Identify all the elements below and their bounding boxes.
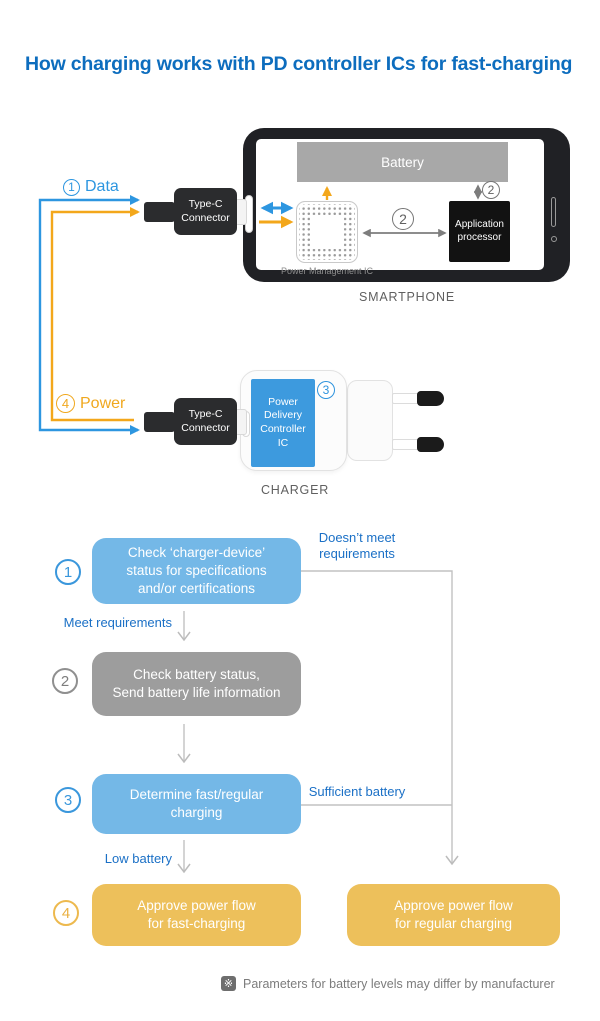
label-doesnt-meet-requirements: Doesn’t meet requirements — [297, 530, 417, 561]
label-meet-requirements: Meet requirements — [38, 615, 172, 631]
typec-cable-stem — [144, 202, 175, 222]
plug-prong-stem — [392, 393, 419, 404]
data-line-label: 1 Data — [63, 178, 119, 196]
label-low-battery: Low battery — [38, 851, 172, 867]
plug-prong-stem — [392, 439, 419, 450]
typec-cable-stem — [144, 412, 175, 432]
step4-badge-icon: 4 — [56, 394, 75, 413]
camera-lens-icon — [551, 236, 557, 242]
footnote: ※ Parameters for battery levels may diff… — [221, 976, 555, 991]
chip-core — [310, 215, 344, 249]
flow-step1-box: Check ‘charger-device’ status for specif… — [92, 538, 301, 604]
typec-connector-smartphone: Type-C Connector — [174, 188, 237, 235]
battery-block: Battery — [297, 142, 508, 182]
step2-badge-bus: 2 — [392, 208, 414, 230]
power-management-ic-chip-icon — [296, 201, 358, 263]
power-line-label: 4 Power — [56, 394, 125, 413]
flow-step3-number: 3 — [55, 787, 81, 813]
footnote-text: Parameters for battery levels may differ… — [243, 977, 555, 991]
reference-mark-icon: ※ — [221, 976, 236, 991]
data-line-text: Data — [85, 178, 119, 196]
plug-prong-tip — [417, 437, 444, 452]
step2-badge-battery: 2 — [482, 181, 500, 199]
application-processor-block: Application processor — [449, 201, 510, 262]
flow-step2-box: Check battery status, Send battery life … — [92, 652, 301, 716]
flow-step3-box: Determine fast/regular charging — [92, 774, 301, 834]
charger-caption: CHARGER — [244, 483, 346, 497]
flow-step2-number: 2 — [52, 668, 78, 694]
flow-step4-regular-box: Approve power flow for regular charging — [347, 884, 560, 946]
flow-step1-number: 1 — [55, 559, 81, 585]
charger-plug-base — [347, 380, 393, 461]
power-line-text: Power — [80, 395, 125, 413]
doesnt-meet-path — [301, 571, 452, 864]
infographic-canvas: How charging works with PD controller IC… — [0, 0, 600, 1021]
side-button — [551, 197, 556, 227]
typec-connector-charger: Type-C Connector — [174, 398, 237, 445]
label-sufficient-battery: Sufficient battery — [297, 784, 417, 800]
pd-controller-ic-block: Power Delivery Controller IC — [251, 379, 315, 467]
step1-badge-icon: 1 — [63, 179, 80, 196]
page-title: How charging works with PD controller IC… — [25, 53, 585, 76]
step3-badge-charger: 3 — [317, 381, 335, 399]
smartphone-caption: SMARTPHONE — [307, 290, 507, 304]
flow-step4-number: 4 — [53, 900, 79, 926]
plug-prong-tip — [417, 391, 444, 406]
pmic-label: Power Management IC — [262, 266, 392, 276]
flow-step4-fast-box: Approve power flow for fast-charging — [92, 884, 301, 946]
power-cable-line — [52, 212, 138, 420]
